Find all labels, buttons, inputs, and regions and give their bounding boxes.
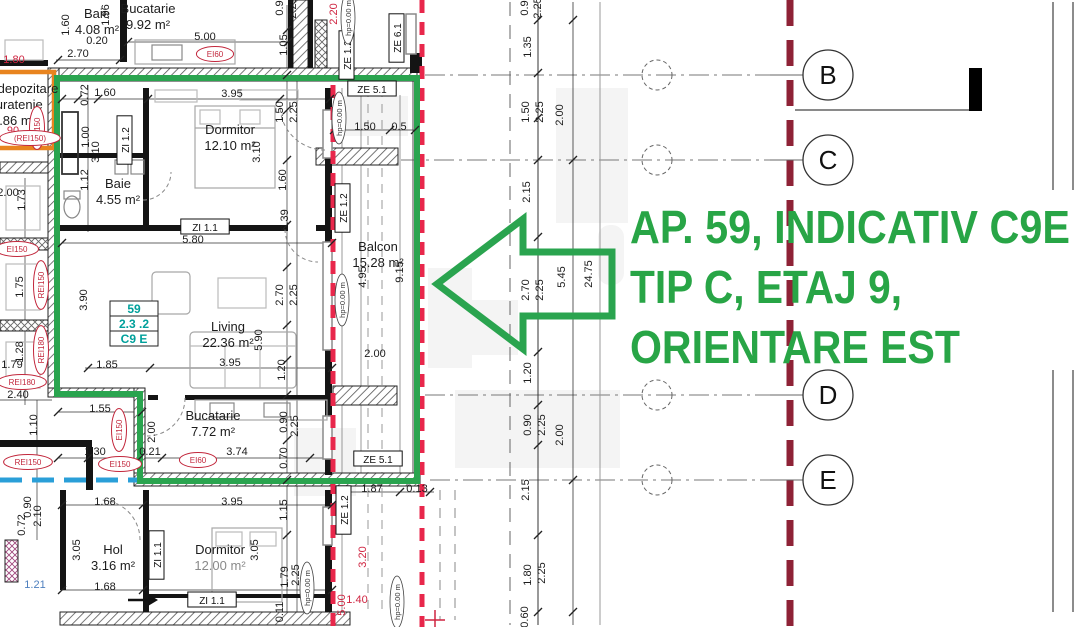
- dimension-label: 2.25: [287, 0, 299, 19]
- dimension-label: 0.70: [278, 447, 290, 468]
- parapet-height-label: hp=0.00 m: [332, 92, 346, 144]
- room-name: Baie: [105, 176, 131, 191]
- dimension-label: 0.72: [79, 84, 91, 105]
- dimension-label: 3.90: [78, 289, 90, 310]
- dimension-label: 3.95: [219, 357, 240, 369]
- fire-rating-label: REI180: [0, 375, 46, 390]
- dimension-label: 1.75: [14, 276, 26, 297]
- dimension-label: 1.60: [277, 169, 289, 190]
- room-name: Hol: [103, 542, 123, 557]
- dimension-label: 2.00: [364, 348, 385, 360]
- dimension-label: 1.20: [276, 359, 288, 380]
- badge-type: C9 E: [121, 332, 148, 346]
- grid-axis-E: E: [770, 455, 853, 505]
- dimension-label: 5.45: [556, 266, 568, 287]
- svg-text:ZI 1.1: ZI 1.1: [153, 542, 164, 568]
- dimension-label: 1.30: [84, 446, 105, 458]
- dimension-label: 0.9: [519, 0, 531, 15]
- dimension-label: 1.87: [361, 483, 382, 495]
- svg-text:REI150: REI150: [15, 458, 42, 467]
- svg-text:hp=0.00 m: hp=0.00 m: [338, 282, 347, 318]
- apartment-annotation: AP. 59, INDICATIV C9E TIP C, ETAJ 9, ORI…: [630, 201, 1070, 373]
- svg-text:ZI 1.1: ZI 1.1: [199, 596, 225, 607]
- joinery-tag: ZE 6.1: [389, 14, 404, 62]
- parapet-height-label: hp=0.00 m: [390, 576, 404, 627]
- dimension-label: 2.25: [536, 562, 548, 583]
- dimension-label: 1.96: [100, 4, 112, 25]
- apartment-badge: 59 2.3 .2 C9 E: [110, 301, 158, 346]
- parapet-height-label: hp=0.00 m: [300, 562, 314, 614]
- fire-rating-label: EI60: [196, 47, 233, 62]
- dimension-label: 1.85: [96, 359, 117, 371]
- parapet-height-label: hp=0.00 m: [335, 274, 349, 326]
- badge-apartment-number: 59: [127, 302, 141, 316]
- fire-rating-label: REI180: [34, 326, 49, 375]
- room-name: Bucatarie: [121, 1, 176, 16]
- svg-text:EI60: EI60: [207, 50, 224, 59]
- dimension-label: 2.00: [554, 424, 566, 445]
- fire-rating-label: EI150: [112, 409, 127, 452]
- annotation-line-2: TIP C, ETAJ 9,: [630, 261, 902, 313]
- dimension-label: 0.20: [86, 35, 107, 47]
- red-cross-marker: [425, 610, 445, 627]
- dimension-label: 2.25: [536, 414, 548, 435]
- fire-rating-label: EI60: [179, 453, 216, 468]
- dimension-label: 1.05: [278, 34, 290, 55]
- parapet-height-label: hp=0.00 m: [341, 0, 355, 44]
- fire-rating-label: REI150: [4, 455, 53, 470]
- room-area: 9.92 m²: [126, 17, 171, 32]
- dimension-label: 2.70: [520, 279, 532, 300]
- dimension-label: 0.13: [406, 483, 427, 495]
- dimension-label: 1.80: [522, 564, 534, 585]
- dimension-label: 24.75: [583, 260, 595, 288]
- dimension-label: 2.10: [32, 505, 44, 526]
- grid-axis-letter: D: [819, 380, 838, 410]
- svg-text:EI150: EI150: [110, 460, 131, 469]
- dimension-label: 3.10: [90, 141, 102, 162]
- room-area: 12.00 m²: [194, 558, 246, 573]
- fire-rating-label: EI150: [99, 457, 142, 472]
- dimension-label: 1.55: [89, 403, 110, 415]
- dimension-label: 5.80: [182, 234, 203, 246]
- grid-axis-B: B: [770, 50, 853, 100]
- svg-text:EI150: EI150: [7, 245, 28, 254]
- grid-axis-letter: C: [819, 145, 838, 175]
- dimension-label: 2.25: [534, 279, 546, 300]
- badge-code: 2.3 .2: [119, 317, 149, 331]
- annotation-line-3: ORIENTARE EST: [630, 321, 960, 373]
- annotation-line-1: AP. 59, INDICATIV C9E: [630, 201, 1070, 253]
- dimension-label: 1.15: [278, 499, 290, 520]
- grid-axis-D: D: [770, 370, 853, 420]
- room-area: 7.72 m²: [191, 424, 236, 439]
- dimension-label: 2.70: [274, 284, 286, 305]
- dimension-label: 0.21: [139, 446, 160, 458]
- dimension-label: 2.00: [554, 104, 566, 125]
- joinery-tag: ZI 1.2: [117, 116, 132, 164]
- dimension-label: 2.40: [7, 389, 28, 401]
- dimension-label: 4.95: [357, 266, 369, 287]
- joinery-tag: ZE 5.1: [348, 81, 396, 96]
- dimension-label: 2.15: [521, 181, 533, 202]
- room-name: Balcon: [358, 239, 398, 254]
- dimension-label: 0.39: [279, 209, 291, 230]
- dimension-label: 0.9: [274, 0, 286, 15]
- room-area: 12.10 m²: [204, 138, 256, 153]
- dimension-label: 1.20: [522, 362, 534, 383]
- svg-text:hp=0.00 m: hp=0.00 m: [335, 100, 344, 136]
- svg-text:ZE 1.2: ZE 1.2: [339, 193, 350, 223]
- room-area: 3.16 m²: [91, 558, 136, 573]
- floorplan-page: Baie4.08 m²Bucatarie9.92 m²depozitarecur…: [0, 0, 1080, 627]
- dimension-label: 1.35: [522, 36, 534, 57]
- floor-plan-canvas: Baie4.08 m²Bucatarie9.92 m²depozitarecur…: [0, 0, 1080, 627]
- fire-rating-label: (REI150): [0, 131, 60, 146]
- dimension-label: 3.95: [221, 496, 242, 508]
- dimension-label: 0.90: [522, 414, 534, 435]
- dimension-label: 2.25: [534, 101, 546, 122]
- dimension-label: 0.5: [391, 121, 406, 133]
- svg-text:EI150: EI150: [115, 419, 124, 440]
- dimension-label: 2.70: [67, 48, 88, 60]
- right-edge-lines: [1053, 2, 1073, 612]
- fire-rating-label: REI150: [34, 261, 49, 310]
- svg-text:ZI 1.2: ZI 1.2: [121, 127, 132, 153]
- room-name: Dormitor: [205, 122, 256, 137]
- svg-text:EI60: EI60: [190, 456, 207, 465]
- dimension-label: 3.74: [226, 446, 247, 458]
- svg-text:ZE 5.1: ZE 5.1: [357, 85, 387, 96]
- dimension-label: 9.15: [394, 261, 406, 282]
- grid-axis-C: C: [770, 135, 853, 185]
- dimension-label: 1.21: [24, 579, 45, 591]
- grid-axis-letter: E: [819, 465, 836, 495]
- dimension-label: 1.68: [94, 496, 115, 508]
- room-name: Bucatarie: [186, 408, 241, 423]
- dimension-label: 1.50: [274, 101, 286, 122]
- dimension-label: 3.95: [221, 88, 242, 100]
- dimension-label: 1.60: [60, 14, 72, 35]
- joinery-tag: ZE 1.2: [336, 486, 351, 534]
- dimension-label: 1.60: [94, 87, 115, 99]
- svg-text:REI180: REI180: [9, 378, 36, 387]
- grid-axis-letter: B: [819, 60, 836, 90]
- dimension-label: 5.00: [194, 31, 215, 43]
- dimension-label: 2.00: [0, 187, 19, 199]
- dimension-label: 3.05: [71, 539, 83, 560]
- svg-text:ZE 5.1: ZE 5.1: [363, 455, 393, 466]
- dimension-label: 1.12: [79, 169, 91, 190]
- dimension-label: 1.80: [3, 54, 24, 66]
- dimension-label: 2.20: [328, 3, 340, 24]
- dimension-label: 0.60: [519, 606, 531, 627]
- joinery-tag: ZE 5.1: [354, 451, 402, 466]
- dimension-label: 2.25: [288, 284, 300, 305]
- svg-text:hp=0.00 m: hp=0.00 m: [344, 0, 353, 36]
- svg-text:(REI150): (REI150): [14, 134, 46, 143]
- svg-text:ZE 6.1: ZE 6.1: [393, 23, 404, 53]
- svg-text:hp=0.00 m: hp=0.00 m: [393, 584, 402, 620]
- joinery-tag: ZI 1.1: [149, 531, 164, 579]
- svg-text:REI150: REI150: [37, 271, 46, 298]
- dimension-label: 1.40: [346, 594, 367, 606]
- svg-text:hp=0.00 m: hp=0.00 m: [303, 570, 312, 606]
- room-name: Dormitor: [195, 542, 246, 557]
- dimension-label: 0.11: [274, 602, 286, 623]
- dimension-label: 5.90: [253, 329, 265, 350]
- joinery-tag: ZE 1.2: [335, 184, 350, 232]
- dimension-label: 2.25: [532, 0, 544, 19]
- svg-text:ZE 1.2: ZE 1.2: [340, 495, 351, 525]
- dimension-label: 1.79: [1, 359, 22, 371]
- svg-text:REI180: REI180: [37, 336, 46, 363]
- room-area: 22.36 m²: [202, 335, 254, 350]
- room-name: depozitare: [0, 81, 58, 96]
- dimension-label: 2.15: [520, 479, 532, 500]
- room-name: Living: [211, 319, 245, 334]
- dimension-label: 3.20: [357, 546, 369, 567]
- dimension-label: 2.25: [288, 101, 300, 122]
- joinery-tag: ZI 1.1: [188, 592, 236, 607]
- dimension-label: 1.50: [354, 121, 375, 133]
- dimension-label: 3.05: [249, 539, 261, 560]
- dimension-label: 1.68: [94, 581, 115, 593]
- dimension-label: 3.10: [251, 141, 263, 162]
- room-area: 4.55 m²: [96, 192, 141, 207]
- dimension-label: 1.50: [520, 101, 532, 122]
- fire-rating-label: EI150: [0, 242, 39, 257]
- dimension-label: 2.25: [289, 415, 301, 436]
- joinery-tag: ZI 1.1: [181, 219, 229, 234]
- dimension-label: 1.10: [28, 414, 40, 435]
- svg-text:ZI 1.1: ZI 1.1: [192, 223, 218, 234]
- dimension-label: 2.00: [146, 421, 158, 442]
